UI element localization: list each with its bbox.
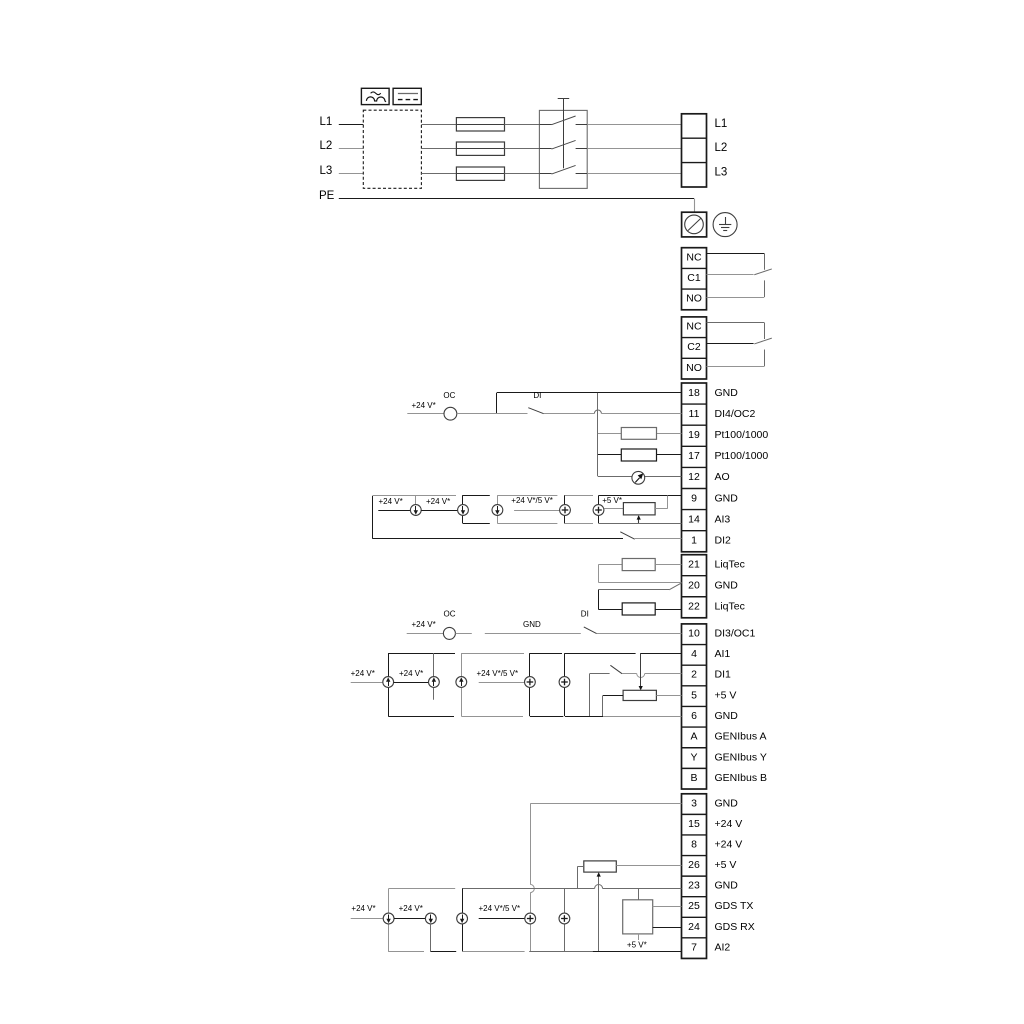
svg-text:L1: L1 <box>715 118 728 130</box>
svg-text:LiqTec: LiqTec <box>715 600 745 612</box>
svg-text:15: 15 <box>688 818 700 830</box>
svg-text:7: 7 <box>691 941 697 953</box>
svg-text:DI2: DI2 <box>715 534 732 546</box>
svg-text:DI4/OC2: DI4/OC2 <box>715 408 756 420</box>
svg-text:OC: OC <box>444 609 456 618</box>
svg-text:GND: GND <box>715 797 739 809</box>
svg-text:L3: L3 <box>715 167 728 179</box>
svg-text:AI2: AI2 <box>715 941 731 953</box>
svg-text:GND: GND <box>715 492 739 504</box>
svg-text:GND: GND <box>523 620 541 629</box>
svg-text:22: 22 <box>688 600 700 612</box>
svg-text:24: 24 <box>688 921 700 933</box>
svg-text:6: 6 <box>691 710 697 722</box>
svg-text:B: B <box>690 772 697 784</box>
svg-text:NC: NC <box>686 251 702 263</box>
svg-text:5: 5 <box>691 689 697 701</box>
svg-text:+24 V: +24 V <box>715 838 743 850</box>
svg-text:AI3: AI3 <box>715 513 731 525</box>
svg-text:GND: GND <box>715 387 739 399</box>
svg-text:Pt100/1000: Pt100/1000 <box>715 429 769 441</box>
svg-text:19: 19 <box>688 429 700 441</box>
svg-text:+24 V*: +24 V* <box>426 497 450 506</box>
svg-text:L1: L1 <box>320 116 333 128</box>
svg-text:+5 V: +5 V <box>715 689 737 701</box>
svg-text:GENIbus Y: GENIbus Y <box>715 751 767 763</box>
svg-text:DI1: DI1 <box>715 669 732 681</box>
svg-text:OC: OC <box>443 391 455 400</box>
svg-text:+24 V*/5 V*: +24 V*/5 V* <box>477 669 519 678</box>
svg-text:GND: GND <box>715 880 739 892</box>
svg-text:GND: GND <box>715 710 739 722</box>
svg-text:PE: PE <box>319 190 335 202</box>
svg-text:GDS RX: GDS RX <box>715 921 755 933</box>
svg-text:+24 V*: +24 V* <box>379 497 403 506</box>
svg-text:NO: NO <box>686 293 702 305</box>
svg-text:20: 20 <box>688 579 700 591</box>
svg-text:+24 V*: +24 V* <box>351 669 375 678</box>
svg-text:+5 V*: +5 V* <box>602 496 622 505</box>
svg-text:4: 4 <box>691 648 697 660</box>
svg-text:L2: L2 <box>320 140 333 152</box>
svg-text:DI: DI <box>581 609 589 618</box>
svg-text:3: 3 <box>691 797 697 809</box>
svg-text:12: 12 <box>688 471 700 483</box>
svg-text:GDS TX: GDS TX <box>715 900 754 912</box>
svg-text:DI3/OC1: DI3/OC1 <box>715 627 756 639</box>
svg-text:9: 9 <box>691 492 697 504</box>
svg-text:25: 25 <box>688 900 700 912</box>
svg-text:11: 11 <box>689 408 700 420</box>
svg-text:+24 V*: +24 V* <box>399 904 423 913</box>
svg-text:+24 V*: +24 V* <box>399 669 423 678</box>
svg-text:+24 V*: +24 V* <box>412 620 436 629</box>
svg-text:AO: AO <box>715 471 730 483</box>
svg-text:GENIbus B: GENIbus B <box>715 772 768 784</box>
svg-text:Pt100/1000: Pt100/1000 <box>715 450 769 462</box>
svg-text:17: 17 <box>688 450 700 462</box>
svg-text:A: A <box>690 731 697 743</box>
svg-text:+24 V*/5 V*: +24 V*/5 V* <box>511 496 553 505</box>
svg-text:C2: C2 <box>687 341 701 353</box>
svg-text:L2: L2 <box>715 142 728 154</box>
svg-text:1: 1 <box>691 534 697 546</box>
svg-text:+5 V: +5 V <box>715 859 737 871</box>
svg-text:AI1: AI1 <box>715 648 731 660</box>
svg-text:+24 V*: +24 V* <box>412 401 436 410</box>
svg-text:14: 14 <box>688 513 700 525</box>
svg-text:GENIbus A: GENIbus A <box>715 731 767 743</box>
svg-text:NO: NO <box>686 362 702 374</box>
svg-text:+24 V: +24 V <box>715 818 743 830</box>
svg-text:+24 V*: +24 V* <box>351 904 375 913</box>
svg-text:Y: Y <box>690 751 697 763</box>
svg-text:NC: NC <box>686 320 702 332</box>
svg-text:18: 18 <box>688 387 700 399</box>
svg-text:26: 26 <box>688 859 700 871</box>
svg-text:+24 V*/5 V*: +24 V*/5 V* <box>479 904 521 913</box>
svg-text:2: 2 <box>691 669 697 681</box>
svg-text:+5 V*: +5 V* <box>627 940 647 949</box>
svg-text:8: 8 <box>691 838 697 850</box>
svg-text:GND: GND <box>715 579 739 591</box>
svg-text:L3: L3 <box>320 165 333 177</box>
svg-text:C1: C1 <box>687 272 701 284</box>
svg-text:23: 23 <box>688 880 700 892</box>
svg-text:LiqTec: LiqTec <box>715 558 745 570</box>
svg-text:10: 10 <box>688 627 700 639</box>
svg-text:21: 21 <box>688 558 700 570</box>
svg-text:DI: DI <box>533 391 541 400</box>
